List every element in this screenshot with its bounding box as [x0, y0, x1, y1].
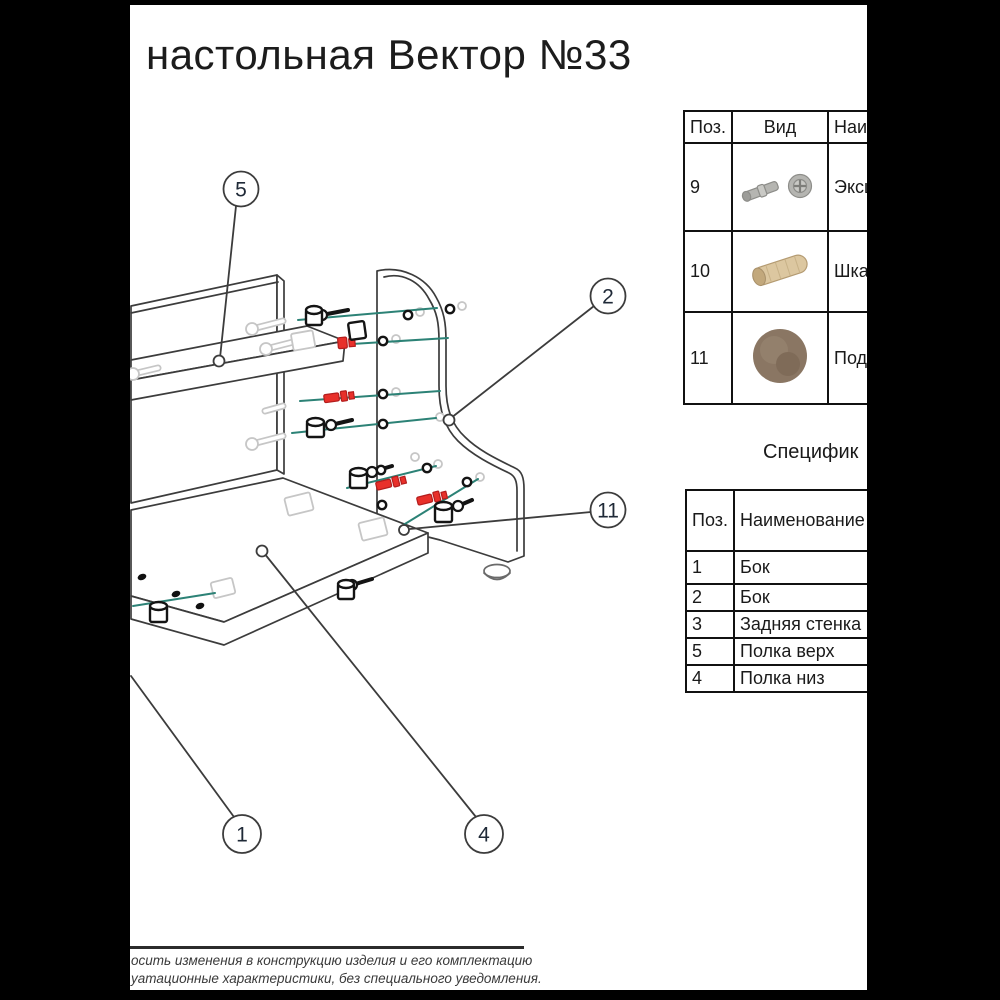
specification-table: Поз. Наименование 1 Бок 2 Бок 3 Задняя с…	[685, 489, 867, 693]
spec-pos: 4	[686, 665, 734, 692]
col-header-name: Наименование	[734, 490, 867, 551]
callout-4: 4	[465, 815, 503, 853]
felt-pad-icon	[732, 312, 828, 404]
spec-name: Полка низ	[734, 665, 867, 692]
callout-5: 5	[224, 172, 259, 207]
callout-1: 1	[223, 815, 261, 853]
table-row: 1 Бок	[686, 551, 867, 584]
part-pos: 11	[684, 312, 732, 404]
document-page: настольная Вектор №33	[130, 5, 867, 990]
table-header-row: Поз. Вид Наим	[684, 111, 867, 143]
table-row: 10 Шкан	[684, 231, 867, 312]
table-row: 2 Бок	[686, 584, 867, 611]
spec-pos: 5	[686, 638, 734, 665]
spec-pos: 3	[686, 611, 734, 638]
table-row: 4 Полка низ	[686, 665, 867, 692]
spec-pos: 1	[686, 551, 734, 584]
col-header-pos: Поз.	[686, 490, 734, 551]
col-header-pos: Поз.	[684, 111, 732, 143]
letterbox-right	[867, 0, 1000, 1000]
letterbox-left	[0, 0, 130, 1000]
footer-disclaimer-line2: уатационные характеристики, без специаль…	[131, 971, 542, 986]
callout-11-label: 11	[597, 500, 619, 523]
table-row: 11 Подп	[684, 312, 867, 404]
part-pos: 10	[684, 231, 732, 312]
part-name: Подп	[828, 312, 867, 404]
col-header-view: Вид	[732, 111, 828, 143]
footer-divider	[130, 946, 524, 949]
callout-11: 11	[591, 493, 626, 528]
callout-4-label: 4	[478, 824, 490, 847]
table-row: 5 Полка верх	[686, 638, 867, 665]
table-row: 3 Задняя стенка	[686, 611, 867, 638]
spec-name: Бок	[734, 584, 867, 611]
spec-pos: 2	[686, 584, 734, 611]
callout-5-label: 5	[235, 179, 247, 202]
spec-name: Полка верх	[734, 638, 867, 665]
part-pos: 9	[684, 143, 732, 231]
letterbox-top	[0, 0, 1000, 5]
wooden-dowel-icon	[732, 231, 828, 312]
callout-2-label: 2	[602, 286, 614, 309]
scanned-assembly-sheet: настольная Вектор №33	[0, 0, 1000, 1000]
callout-2: 2	[591, 279, 626, 314]
spec-heading: Специфик	[763, 441, 858, 464]
letterbox-bottom	[0, 990, 1000, 1000]
col-header-name: Наим	[828, 111, 867, 143]
part-name: Шкан	[828, 231, 867, 312]
footer-disclaimer-line1: осить изменения в конструкцию изделия и …	[131, 953, 532, 968]
hardware-parts-table: Поз. Вид Наим 9	[683, 110, 867, 405]
callout-1-label: 1	[236, 824, 248, 847]
part-name: Эксц	[828, 143, 867, 231]
spec-name: Бок	[734, 551, 867, 584]
table-row: 9 Эксц	[684, 143, 867, 231]
spec-name: Задняя стенка	[734, 611, 867, 638]
eccentric-bolt-icon	[732, 143, 828, 231]
table-header-row: Поз. Наименование	[686, 490, 867, 551]
